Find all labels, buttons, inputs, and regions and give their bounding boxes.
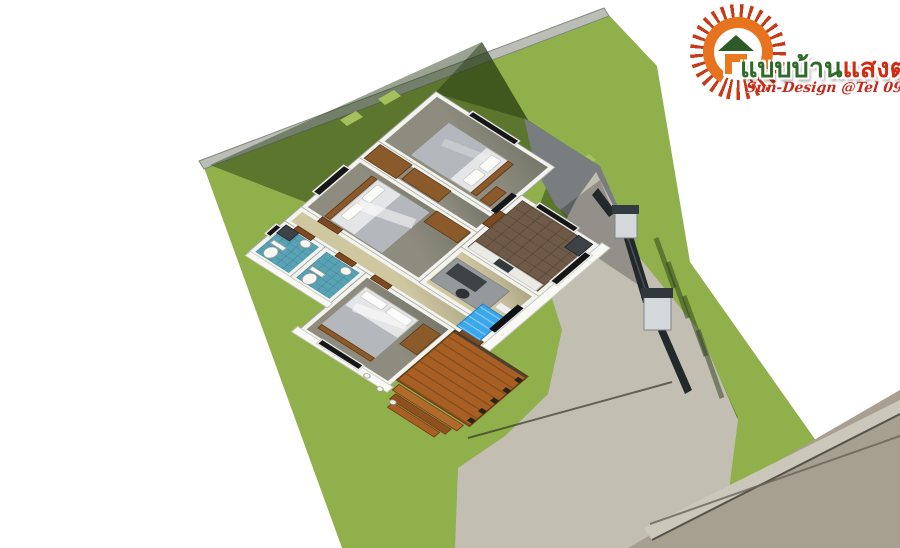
house-door-icon: [732, 62, 740, 76]
floor-plan-render: แบบบ้านแสงตะวัน Sun-Design @Tel 098.1647…: [0, 0, 900, 548]
gate-post: [615, 212, 637, 238]
brand-tagline: Sun-Design @Tel 098.1647-662: [745, 80, 900, 96]
brand-name-green: แบบบ้าน: [740, 53, 842, 83]
gate-post: [644, 296, 671, 330]
gate-post-cap: [612, 205, 639, 214]
gate-post-cap: [641, 288, 673, 298]
brand-name-red: แสงตะวัน: [842, 53, 900, 83]
company-logo: แบบบ้านแสงตะวัน Sun-Design @Tel 098.1647…: [690, 4, 896, 108]
